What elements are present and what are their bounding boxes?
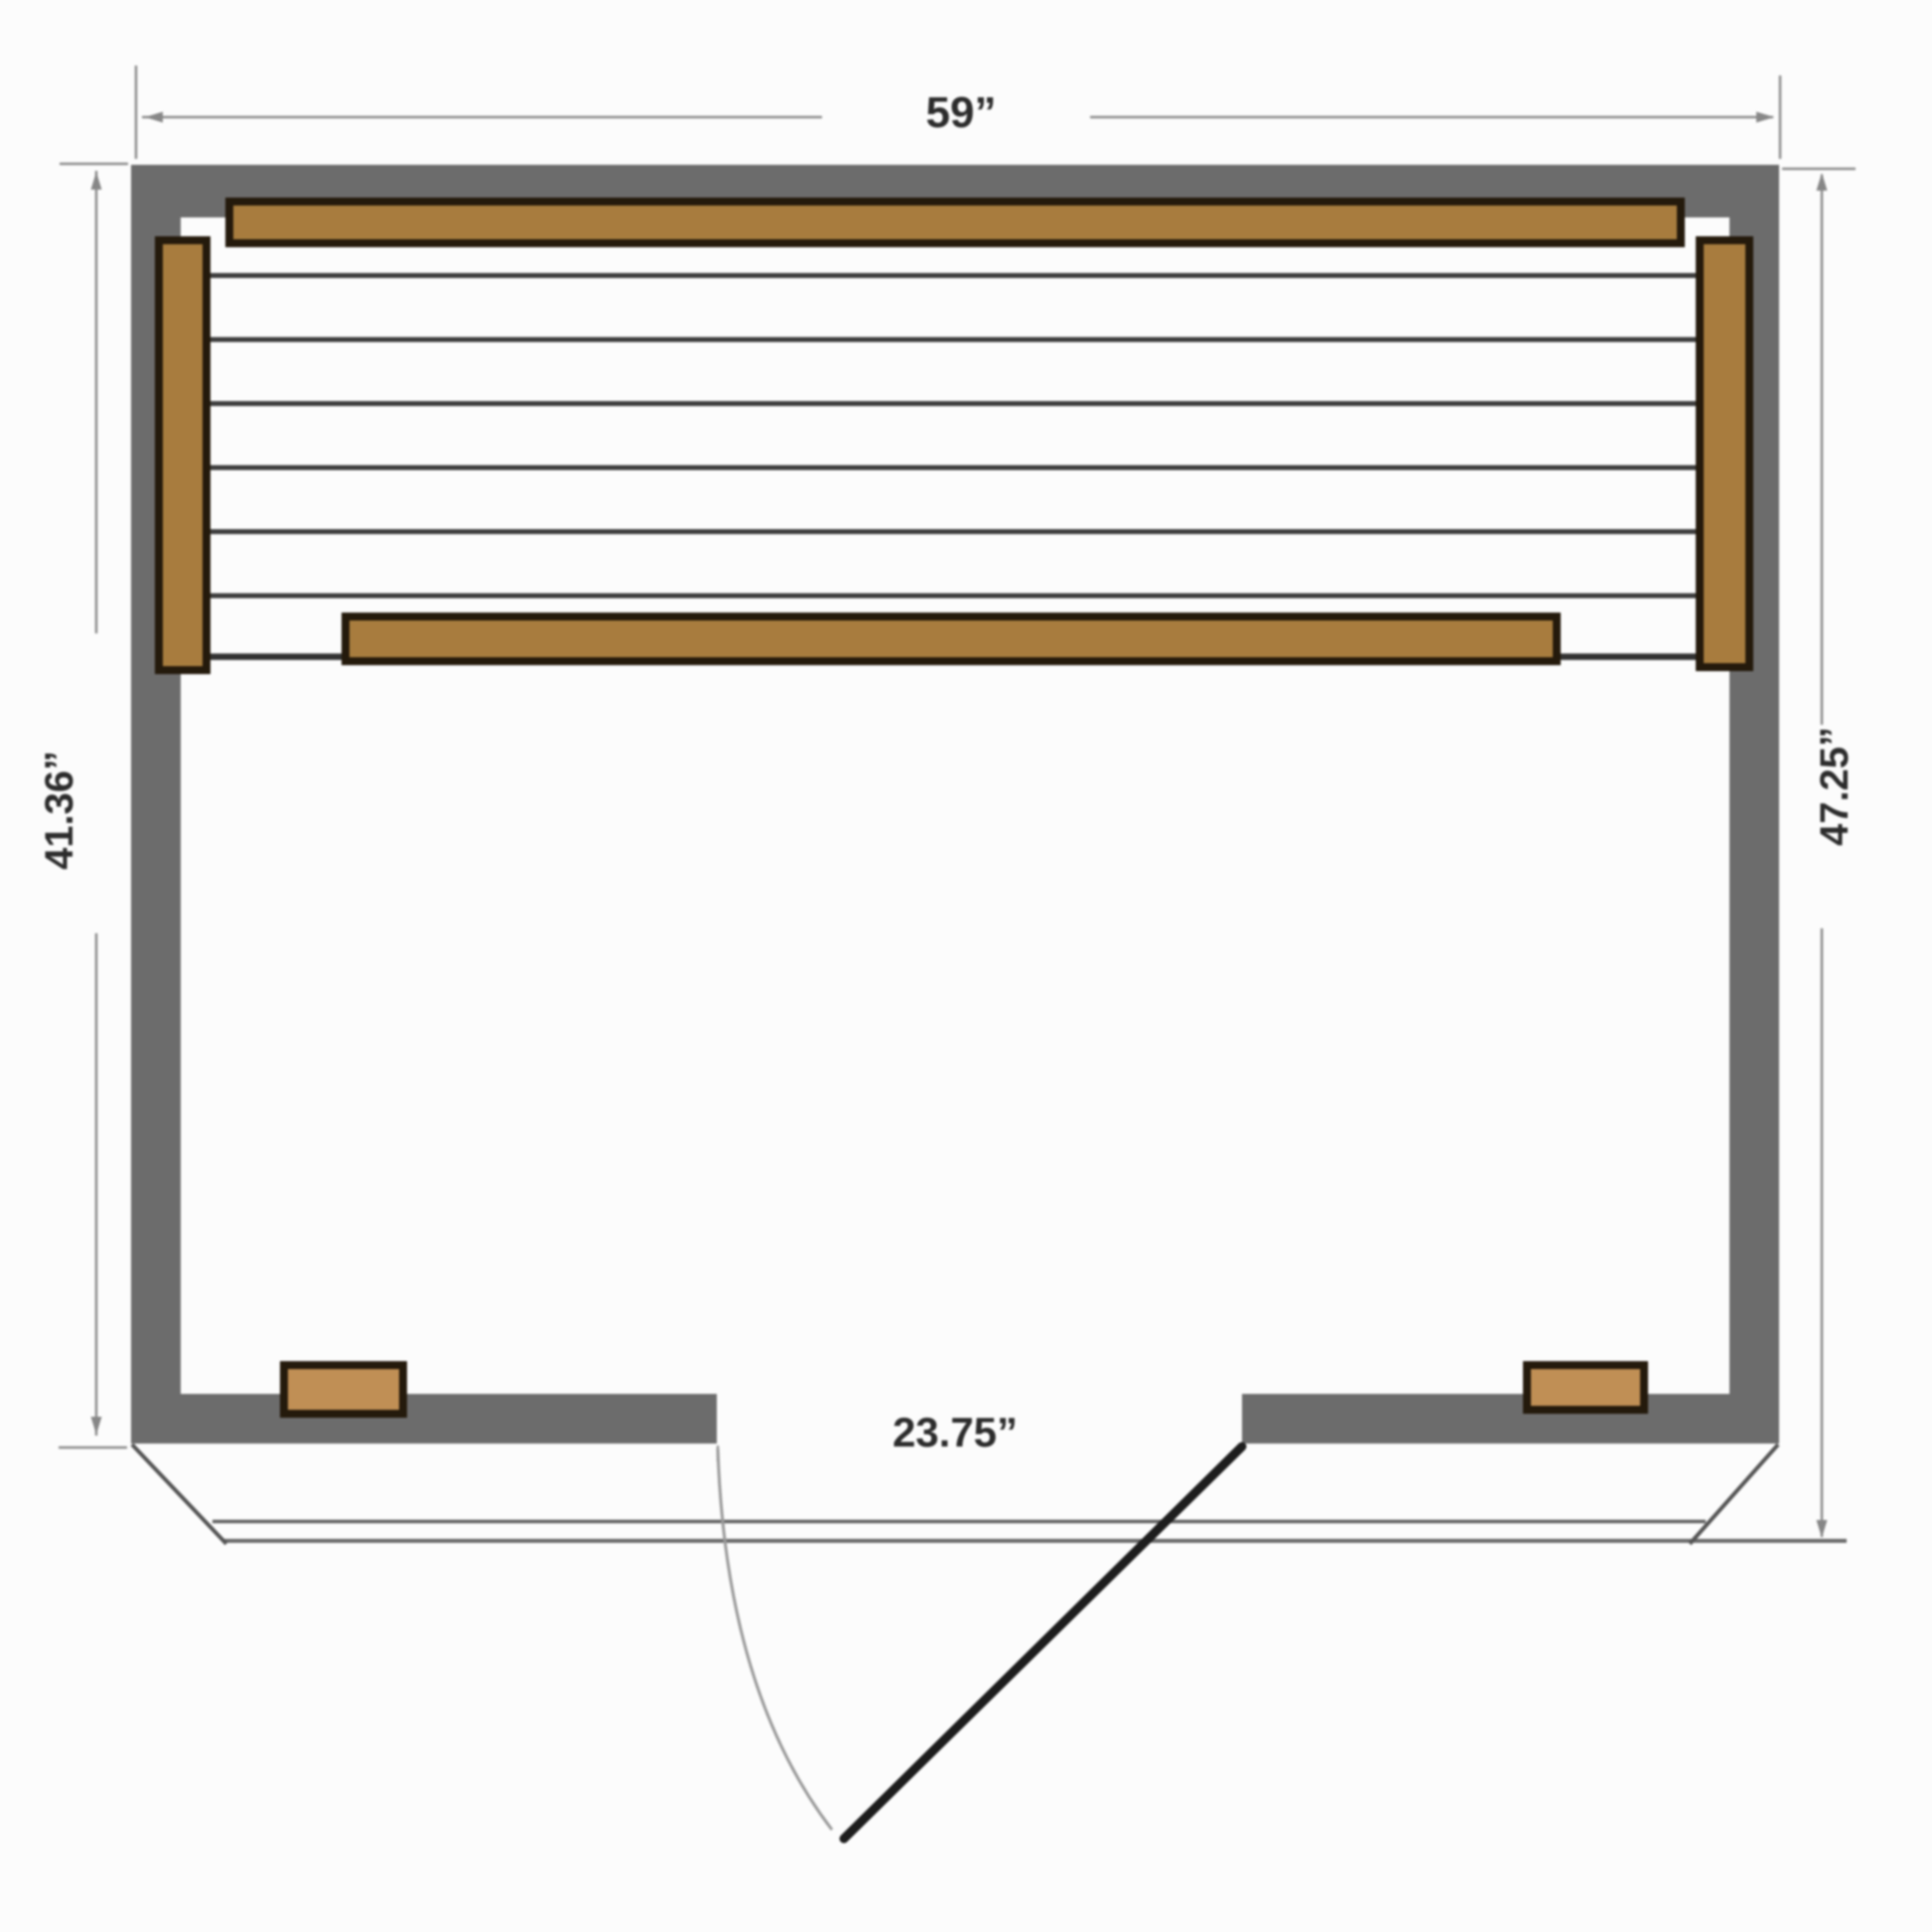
svg-text:23.75”: 23.75” [893,1409,1018,1455]
svg-text:47.25”: 47.25” [1813,727,1857,846]
svg-text:41.36”: 41.36” [38,751,81,870]
svg-text:59”: 59” [926,88,997,137]
